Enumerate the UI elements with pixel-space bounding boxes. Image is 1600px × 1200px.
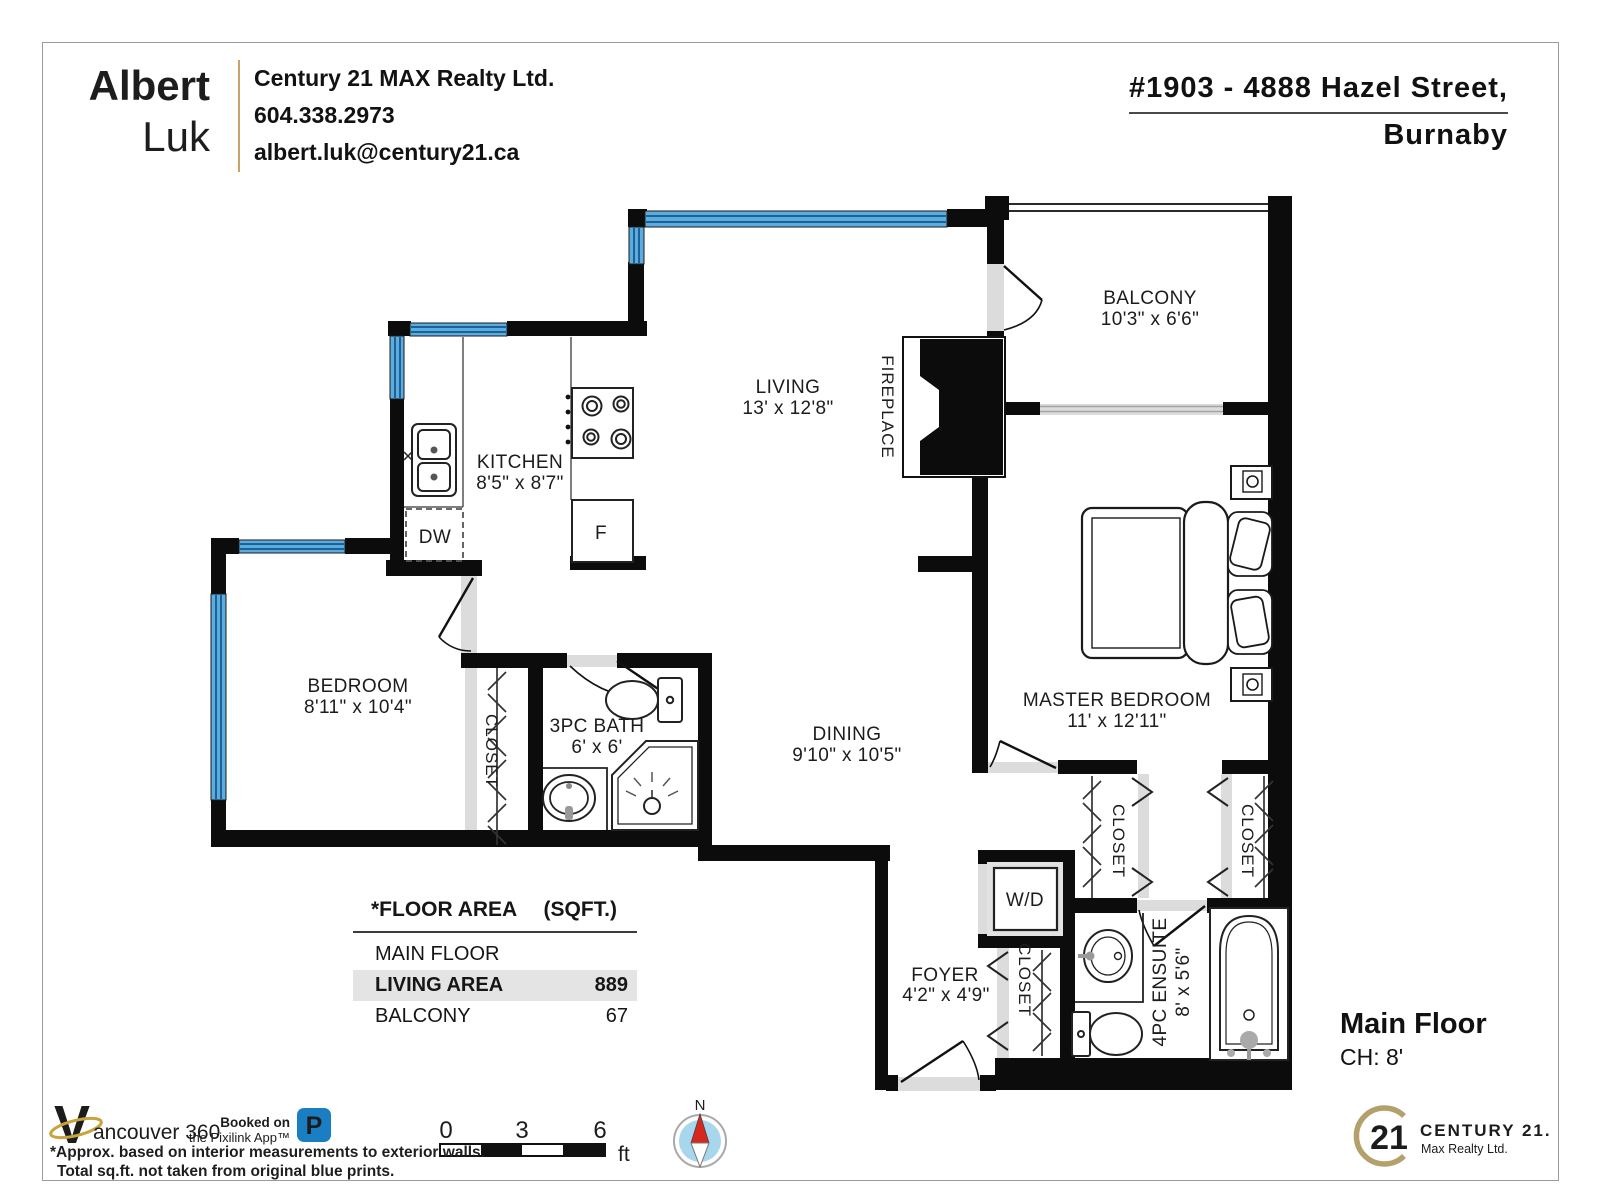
room-label-wd: W/D [1006, 890, 1044, 911]
room-dims-master: 11' x 12'11" [1067, 711, 1166, 732]
floor-name-block: Main Floor CH: 8' [1340, 1008, 1487, 1071]
row-value: 67 [606, 1005, 628, 1028]
disclaimer: *Approx. based on interior measurements … [50, 1143, 485, 1181]
master-bed [1082, 466, 1272, 701]
ensuite-toilet [1072, 1012, 1142, 1056]
kitchen-side-window [390, 336, 404, 399]
floor-area-header: *FLOOR AREA (SQFT.) [353, 896, 637, 933]
living-window [645, 211, 947, 227]
century21-number: 21 [1370, 1119, 1408, 1157]
room-label-kitchen: KITCHEN [477, 452, 563, 473]
stove [566, 388, 633, 458]
room-label-living: LIVING [756, 377, 821, 398]
room-label-balcony: BALCONY [1103, 288, 1197, 309]
floorplan-page: Albert Luk Century 21 MAX Realty Ltd. 60… [0, 0, 1600, 1200]
entry-door [901, 1041, 963, 1082]
table-row: BALCONY 67 [353, 1001, 637, 1032]
century21-sub: Max Realty Ltd. [1421, 1142, 1508, 1156]
pixilink-line1: Booked on [220, 1115, 290, 1130]
bed-duvet-roll [1184, 502, 1228, 664]
room-dims-living: 13' x 12'8" [742, 398, 833, 419]
room-label-closet-master-left: CLOSET [1109, 804, 1128, 878]
pixilink-p: P [306, 1112, 323, 1140]
bed-blanket [1082, 508, 1188, 658]
table-row: LIVING AREA 889 [353, 970, 637, 1001]
room-dims-balcony: 10'3" x 6'6" [1101, 309, 1199, 330]
century21-name: CENTURY 21. [1420, 1121, 1552, 1140]
ceiling-height: CH: 8' [1340, 1044, 1487, 1071]
room-label-closet-master-right: CLOSET [1238, 804, 1257, 878]
bed-pillows [1228, 512, 1272, 654]
scale-unit: ft [618, 1143, 630, 1166]
row-value: 889 [595, 974, 628, 997]
room-label-master: MASTER BEDROOM [1023, 690, 1211, 711]
label-fridge: F [595, 523, 607, 544]
room-dims-bedroom: 8'11" x 10'4" [304, 697, 412, 718]
row-label: MAIN FLOOR [375, 943, 499, 966]
compass-icon: N [674, 1097, 726, 1167]
room-dims-foyer: 4'2" x 4'9" [902, 985, 989, 1006]
room-label-dining: DINING [813, 724, 882, 745]
nightstand-top [1231, 466, 1272, 499]
room-label-bath: 3PC BATH [550, 716, 645, 737]
kitchen-window [410, 323, 507, 336]
floor-area-table: *FLOOR AREA (SQFT.) MAIN FLOOR LIVING AR… [353, 896, 637, 1032]
floor-area-unit: (SQFT.) [544, 898, 638, 922]
room-label-bedroom: BEDROOM [308, 676, 409, 697]
floor-name: Main Floor [1340, 1008, 1487, 1041]
balcony-railing [1009, 204, 1268, 211]
room-dims-kitchen: 8'5" x 8'7" [476, 473, 563, 494]
room-label-ensuite: 4PC ENSUITE [1150, 918, 1171, 1047]
bedroom-window [239, 540, 345, 553]
room-label-foyer: FOYER [911, 965, 978, 986]
kitchen-sink [404, 424, 456, 496]
century21-logo: 21 CENTURY 21. Max Realty Ltd. [1356, 1108, 1551, 1164]
room-label-closet-bedroom: CLOSET [482, 714, 501, 788]
disclaimer-line2: Total sq.ft. not taken from original blu… [50, 1162, 485, 1181]
room-label-closet-foyer: CLOSET [1015, 943, 1034, 1017]
shower [612, 741, 698, 830]
row-label: BALCONY [375, 1005, 471, 1028]
row-label: LIVING AREA [375, 974, 503, 997]
compass-north-label: N [695, 1097, 706, 1114]
scale-tick-3: 3 [515, 1117, 528, 1144]
fireplace [903, 337, 1005, 477]
room-dims-ensuite: 8' x 5'6" [1173, 947, 1194, 1016]
living-side-window [629, 227, 644, 264]
floor-area-title: *FLOOR AREA [371, 898, 517, 922]
label-dishwasher: DW [419, 527, 451, 548]
nightstand-bottom [1231, 668, 1272, 701]
bath-vanity [543, 768, 607, 830]
ensuite-vanity [1075, 913, 1143, 1002]
bathtub [1210, 908, 1288, 1060]
disclaimer-line1: *Approx. based on interior measurements … [50, 1143, 485, 1162]
bedroom-side-window [211, 594, 226, 800]
room-dims-dining: 9'10" x 10'5" [792, 745, 901, 766]
scale-tick-6: 6 [593, 1117, 606, 1144]
balcony-door [1004, 266, 1042, 300]
room-dims-bath: 6' x 6' [571, 737, 622, 758]
room-label-fireplace: FIREPLACE [878, 355, 897, 458]
table-row: MAIN FLOOR [353, 939, 637, 970]
scale-tick-0: 0 [439, 1117, 452, 1144]
